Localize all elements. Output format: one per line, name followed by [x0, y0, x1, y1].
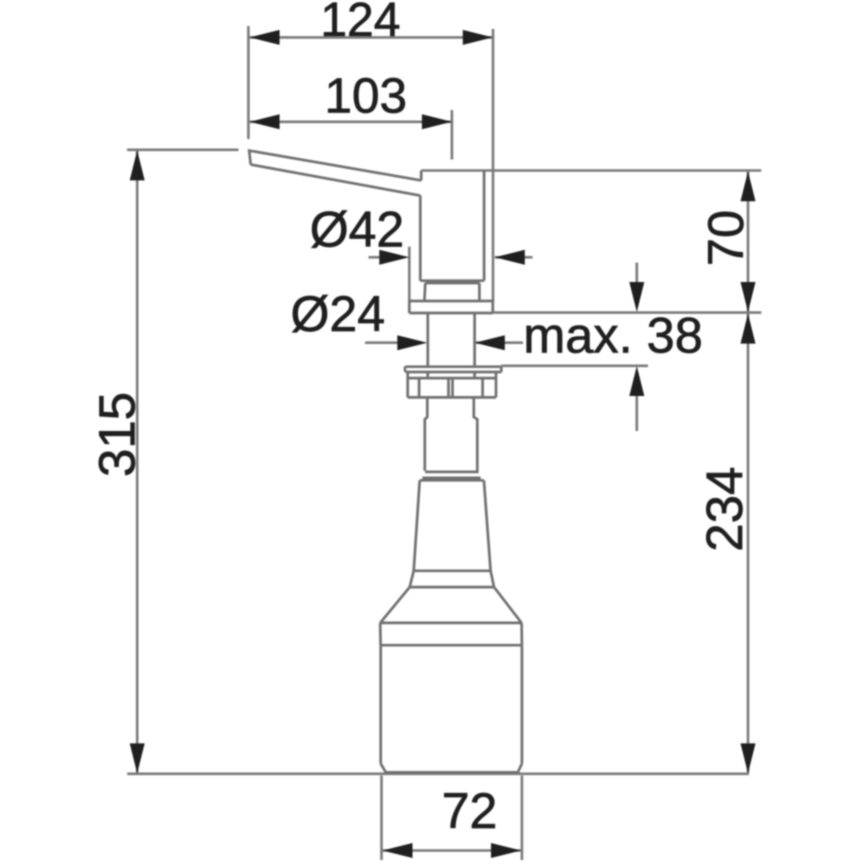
svg-text:72: 72	[442, 783, 498, 839]
svg-text:max. 38: max. 38	[523, 307, 703, 364]
svg-text:234: 234	[696, 467, 753, 552]
svg-text:124: 124	[320, 0, 400, 47]
svg-text:70: 70	[697, 210, 754, 266]
svg-text:Ø24: Ø24	[291, 286, 386, 342]
svg-text:103: 103	[325, 69, 408, 124]
svg-text:Ø42: Ø42	[310, 201, 405, 257]
